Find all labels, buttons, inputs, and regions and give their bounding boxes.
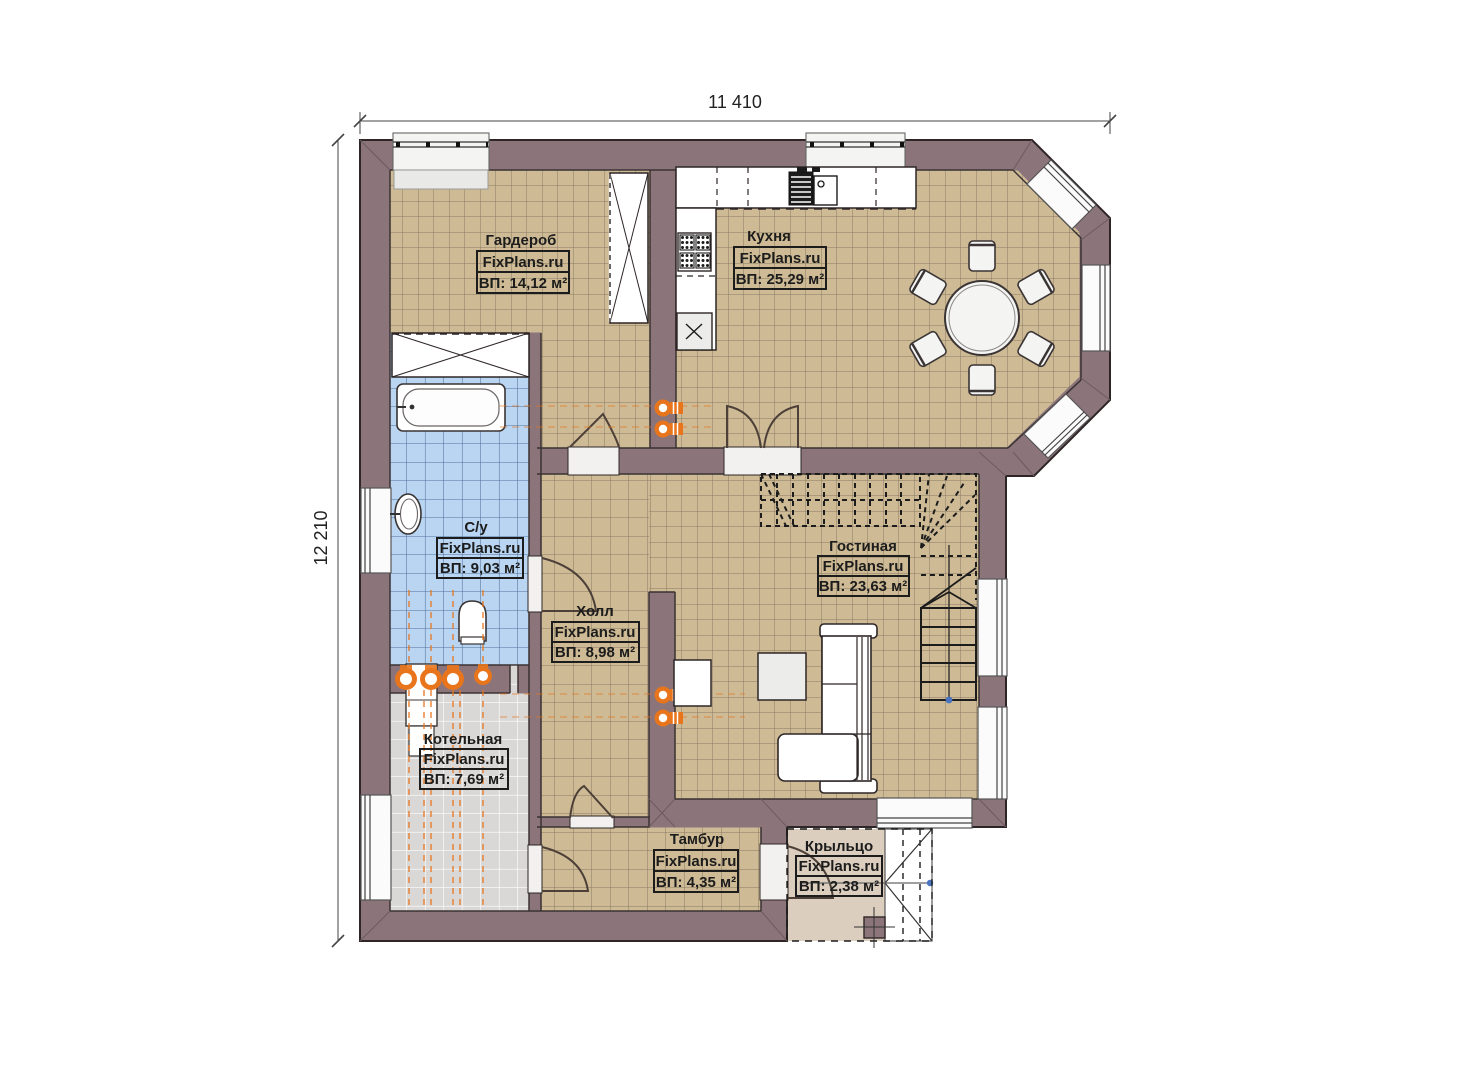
svg-text:ВП: 25,29 м²: ВП: 25,29 м²	[736, 271, 825, 288]
svg-text:Крыльцо: Крыльцо	[805, 838, 873, 855]
svg-text:FixPlans.ru: FixPlans.ru	[740, 250, 821, 267]
svg-text:FixPlans.ru: FixPlans.ru	[799, 858, 880, 875]
svg-text:FixPlans.ru: FixPlans.ru	[823, 558, 904, 575]
svg-text:FixPlans.ru: FixPlans.ru	[555, 624, 636, 641]
svg-text:С/у: С/у	[464, 519, 488, 536]
svg-text:Холл: Холл	[576, 603, 614, 620]
svg-text:ВП: 23,63 м²: ВП: 23,63 м²	[819, 578, 908, 595]
svg-text:Кухня: Кухня	[747, 228, 791, 245]
svg-text:FixPlans.ru: FixPlans.ru	[483, 254, 564, 271]
svg-text:ВП: 7,69 м²: ВП: 7,69 м²	[424, 771, 504, 788]
svg-text:12 210: 12 210	[311, 510, 331, 565]
svg-text:Гостиная: Гостиная	[829, 538, 897, 555]
svg-text:Котельная: Котельная	[424, 731, 503, 748]
svg-text:11 410: 11 410	[708, 92, 762, 112]
svg-text:Тамбур: Тамбур	[670, 831, 724, 848]
svg-text:ВП: 4,35 м²: ВП: 4,35 м²	[656, 874, 736, 891]
svg-text:Гардероб: Гардероб	[486, 232, 557, 249]
svg-text:FixPlans.ru: FixPlans.ru	[656, 853, 737, 870]
svg-text:FixPlans.ru: FixPlans.ru	[440, 540, 521, 557]
svg-text:FixPlans.ru: FixPlans.ru	[424, 751, 505, 768]
svg-text:ВП: 2,38 м²: ВП: 2,38 м²	[799, 878, 879, 895]
svg-text:ВП: 8,98 м²: ВП: 8,98 м²	[555, 644, 635, 661]
svg-text:ВП: 14,12 м²: ВП: 14,12 м²	[479, 275, 568, 292]
svg-text:ВП: 9,03 м²: ВП: 9,03 м²	[440, 560, 520, 577]
